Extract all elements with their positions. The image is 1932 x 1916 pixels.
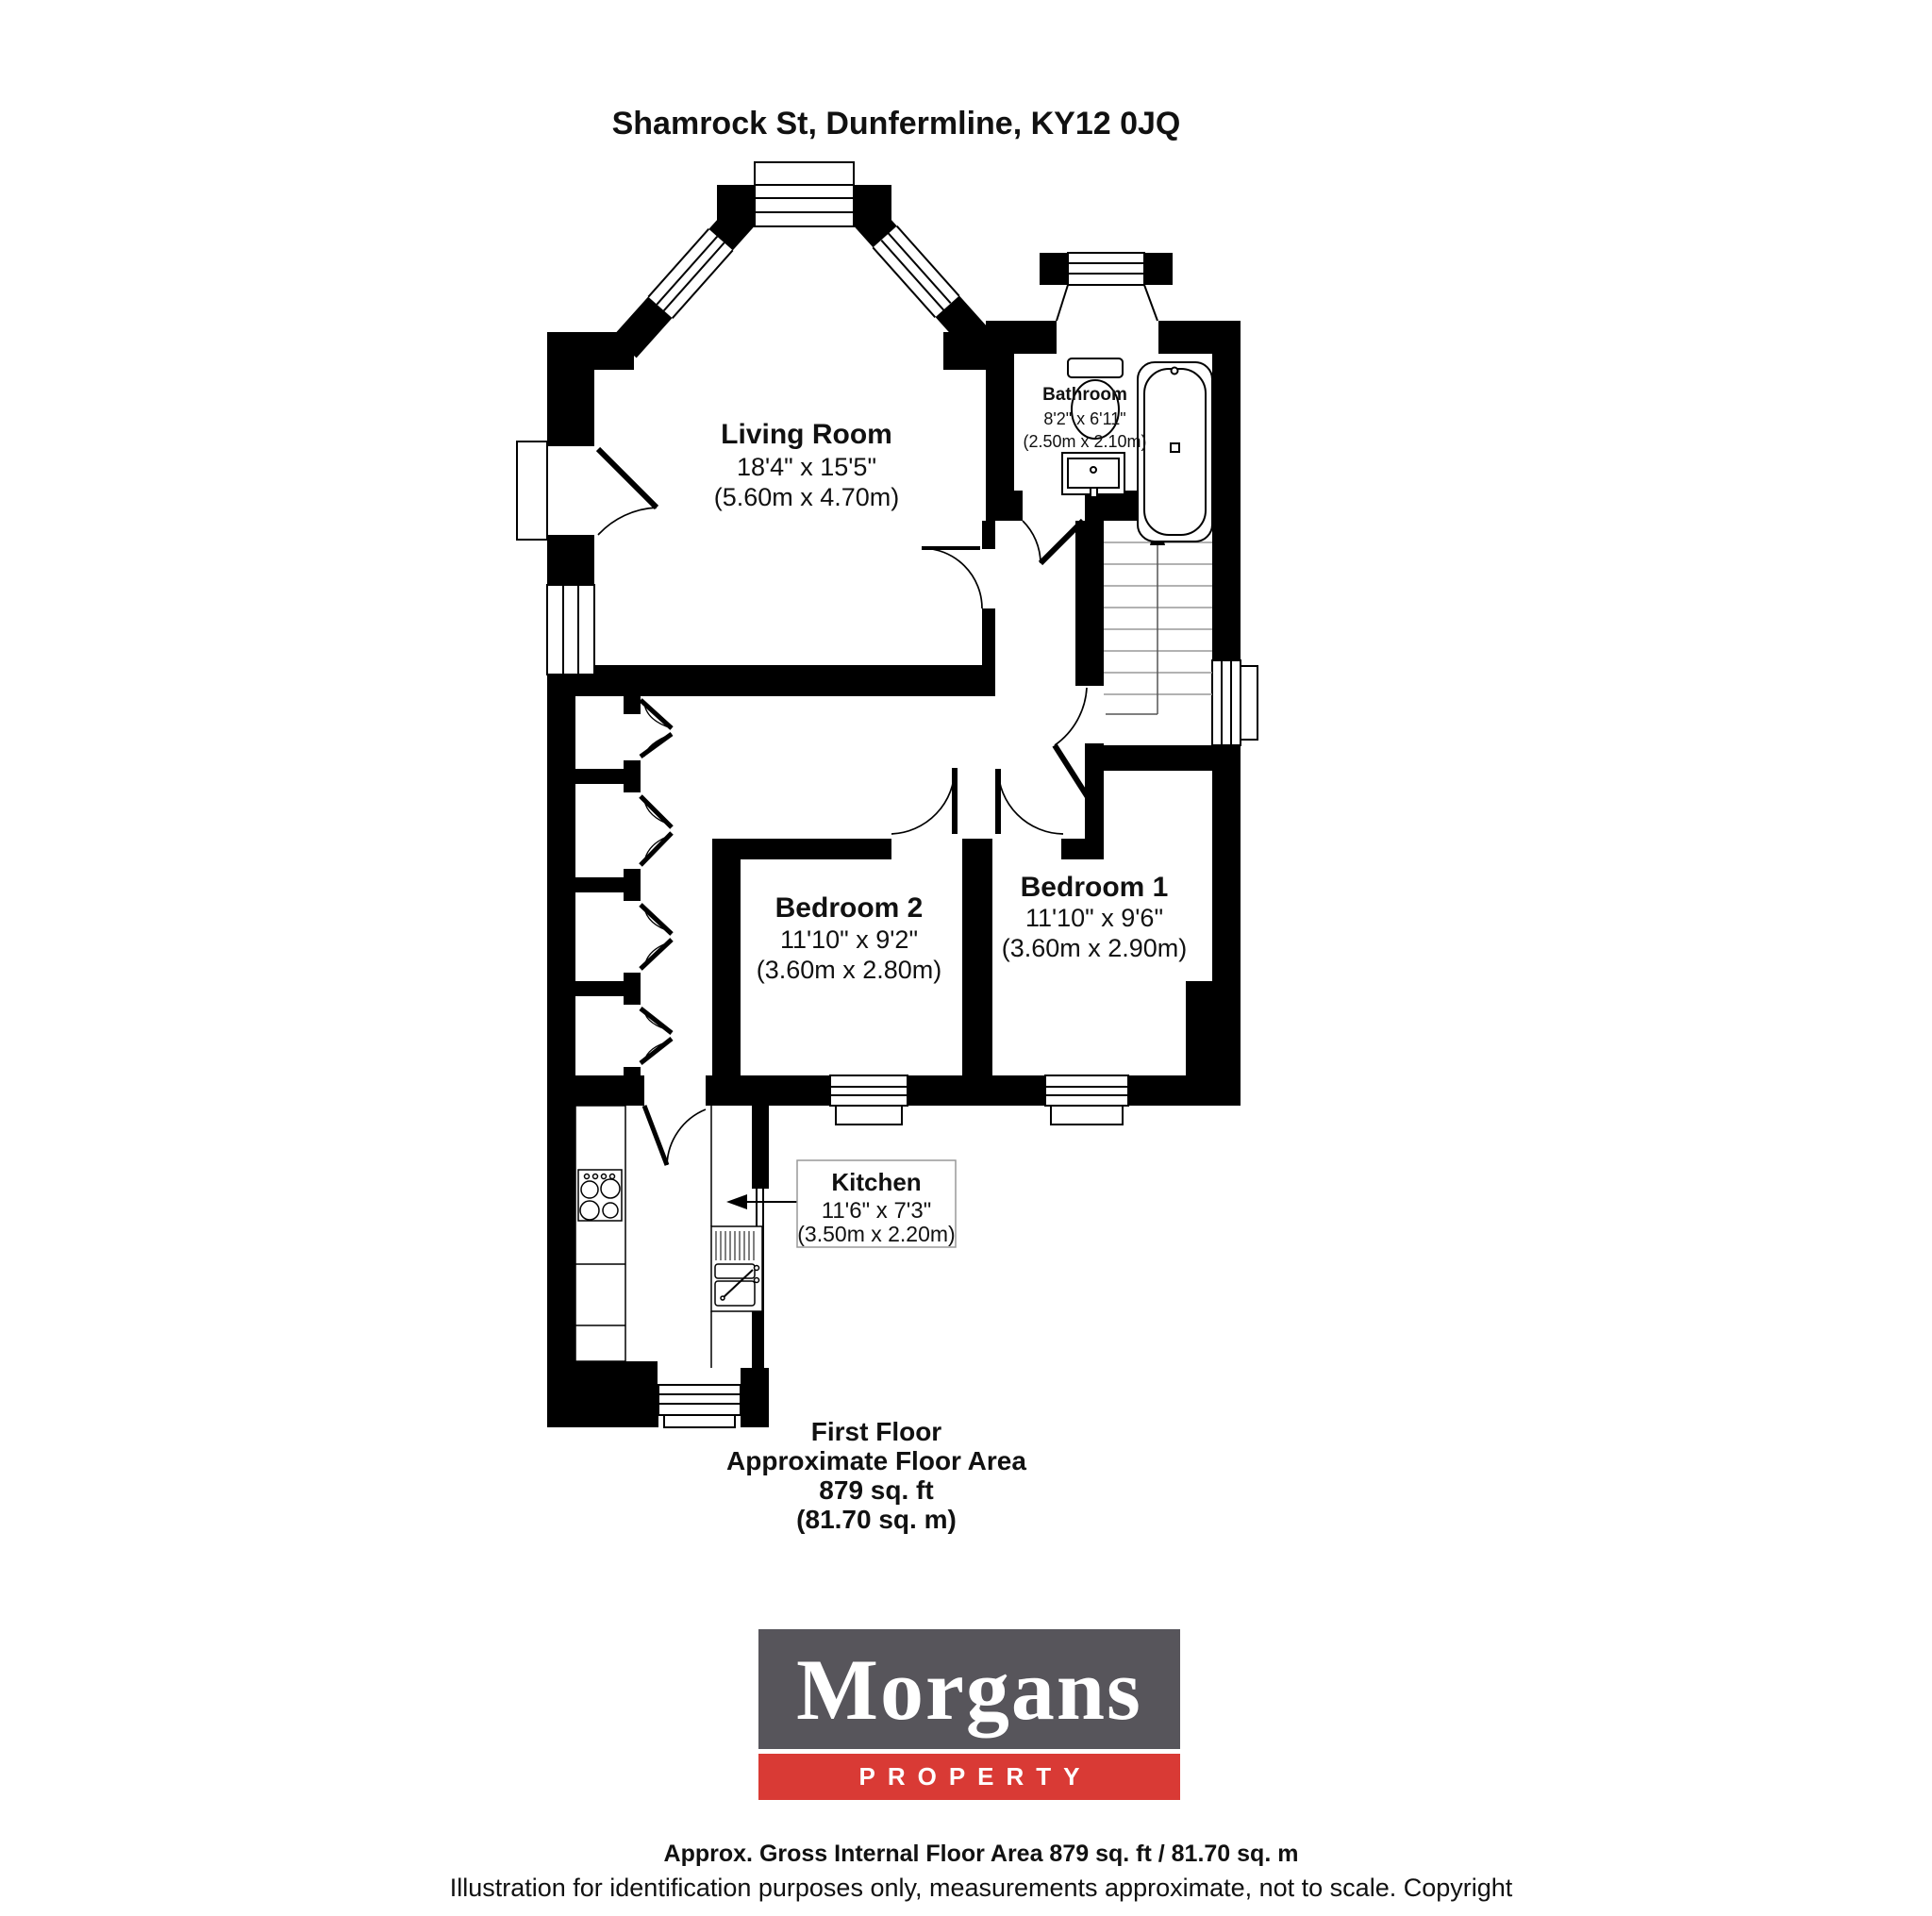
agency-logo: Morgans PROPERTY — [758, 1629, 1180, 1800]
svg-text:Approximate Floor Area: Approximate Floor Area — [726, 1446, 1026, 1475]
floorplan-page: Shamrock St, Dunfermline, KY12 0JQ — [0, 0, 1932, 1916]
footer-area-line: Approx. Gross Internal Floor Area 879 sq… — [664, 1841, 1299, 1867]
room-label-bedroom1: Bedroom 1 11'10" x 9'6" (3.60m x 2.90m) — [1002, 872, 1188, 962]
svg-text:(2.50m x 2.10m): (2.50m x 2.10m) — [1023, 432, 1146, 451]
svg-text:11'6" x 7'3": 11'6" x 7'3" — [822, 1198, 932, 1224]
svg-text:(81.70 sq. m): (81.70 sq. m) — [796, 1505, 957, 1534]
svg-text:Living Room: Living Room — [721, 419, 892, 450]
footer: Approx. Gross Internal Floor Area 879 sq… — [450, 1841, 1513, 1902]
svg-text:Kitchen: Kitchen — [831, 1168, 921, 1196]
svg-text:879 sq. ft: 879 sq. ft — [819, 1475, 933, 1505]
page-title: Shamrock St, Dunfermline, KY12 0JQ — [612, 106, 1181, 142]
svg-text:Bathroom: Bathroom — [1042, 385, 1127, 405]
floor-summary: First Floor Approximate Floor Area 879 s… — [726, 1417, 1026, 1534]
stairs — [1104, 530, 1212, 714]
svg-text:11'10" x 9'2": 11'10" x 9'2" — [780, 925, 918, 954]
room-label-bedroom2: Bedroom 2 11'10" x 9'2" (3.60m x 2.80m) — [757, 892, 942, 984]
bathroom-sink-icon — [1062, 453, 1124, 497]
cupboard-doors — [641, 700, 672, 1063]
agency-logo-brand: Morgans — [758, 1629, 1180, 1749]
stove-icon — [578, 1170, 622, 1221]
kitchen-sink-icon — [711, 1226, 762, 1311]
svg-text:Bedroom 1: Bedroom 1 — [1021, 872, 1169, 903]
svg-text:18'4" x 15'5": 18'4" x 15'5" — [737, 453, 876, 481]
svg-text:(3.50m x 2.20m): (3.50m x 2.20m) — [797, 1222, 955, 1246]
room-label-living: Living Room 18'4" x 15'5" (5.60m x 4.70m… — [714, 419, 900, 511]
svg-text:8'2" x 6'11": 8'2" x 6'11" — [1043, 409, 1125, 428]
kitchen-leader-arrow-icon — [726, 1194, 747, 1209]
svg-text:(5.60m x 4.70m): (5.60m x 4.70m) — [714, 483, 900, 511]
svg-text:Bedroom 2: Bedroom 2 — [775, 892, 924, 924]
agency-logo-division: PROPERTY — [758, 1754, 1180, 1800]
svg-text:First Floor: First Floor — [811, 1417, 942, 1446]
svg-text:(3.60m x 2.80m): (3.60m x 2.80m) — [757, 956, 942, 984]
svg-text:(3.60m x 2.90m): (3.60m x 2.90m) — [1002, 934, 1188, 962]
svg-text:11'10" x 9'6": 11'10" x 9'6" — [1025, 904, 1163, 932]
kitchen-counter — [575, 1106, 711, 1368]
doors — [598, 449, 1094, 1165]
room-label-bathroom: Bathroom 8'2" x 6'11" (2.50m x 2.10m) — [1023, 385, 1146, 451]
footer-disclaimer-line: Illustration for identification purposes… — [450, 1874, 1513, 1902]
bathtub-icon — [1138, 362, 1212, 541]
